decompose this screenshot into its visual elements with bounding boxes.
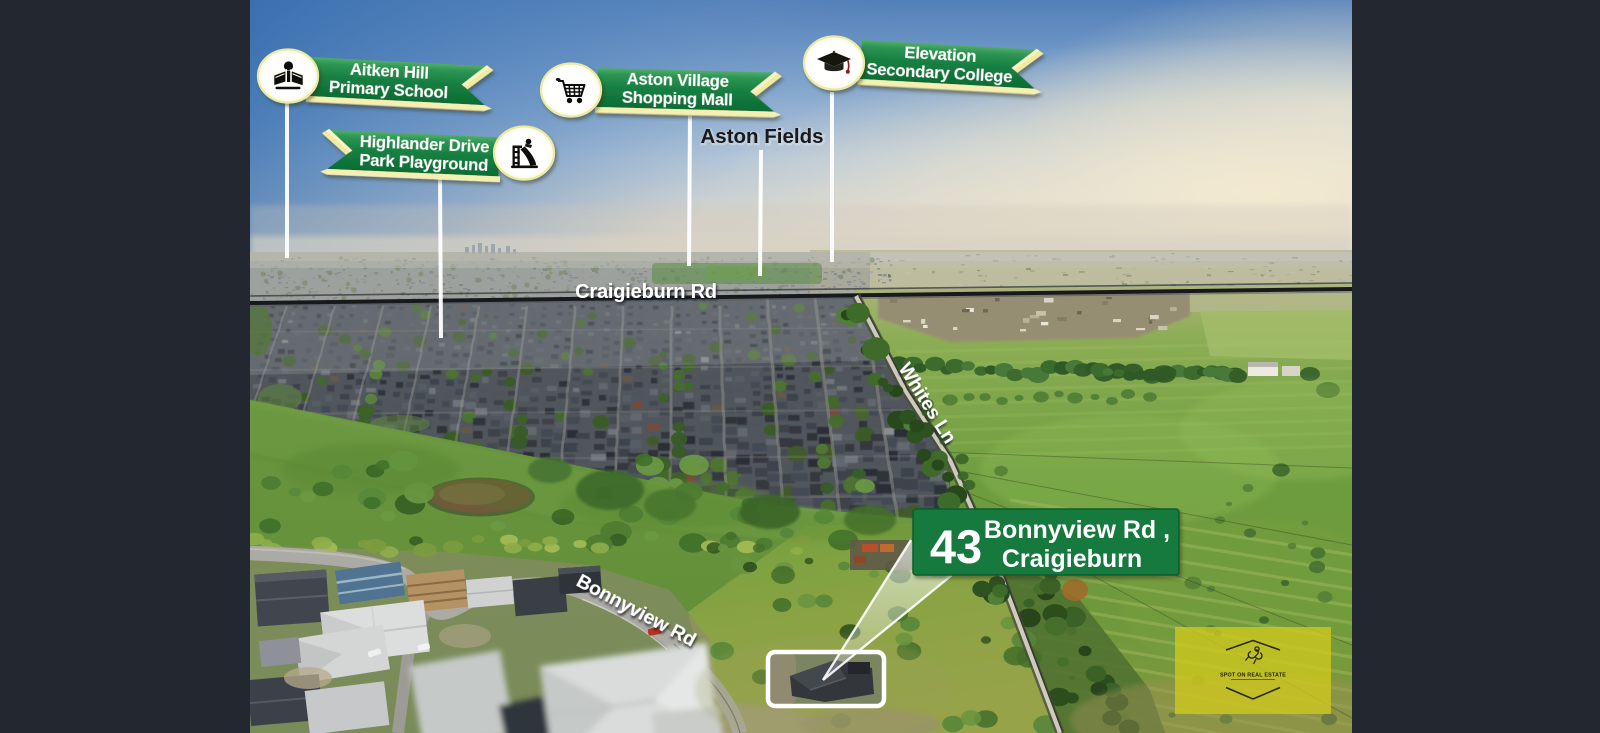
svg-text:Craigieburn Rd: Craigieburn Rd: [575, 281, 717, 303]
svg-text:Shopping Mall: Shopping Mall: [622, 88, 733, 110]
svg-text:Aston Fields: Aston Fields: [700, 125, 823, 148]
svg-text:43: 43: [930, 520, 982, 573]
svg-text:SPOT ON REAL ESTATE: SPOT ON REAL ESTATE: [1220, 673, 1286, 679]
svg-text:Bonnyview Rd ,: Bonnyview Rd ,: [984, 516, 1170, 544]
svg-text:Craigieburn: Craigieburn: [1002, 545, 1142, 573]
